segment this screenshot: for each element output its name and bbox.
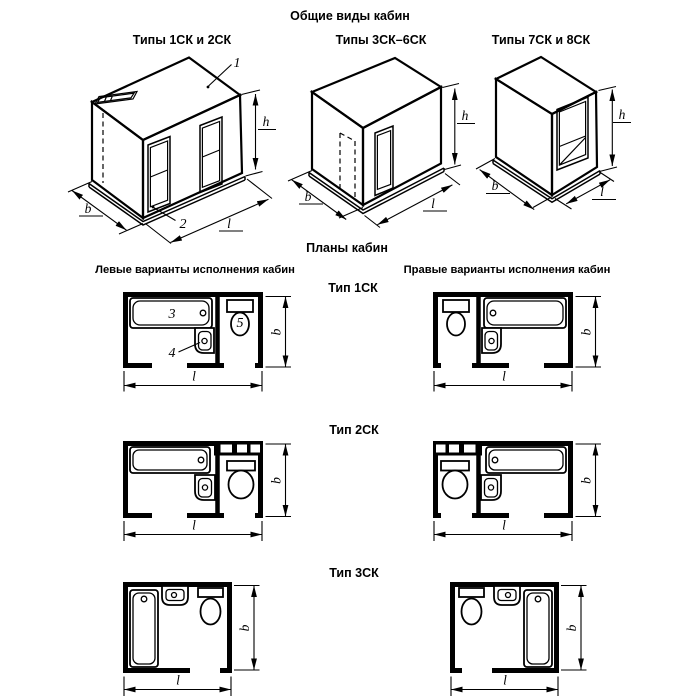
right-variants-heading: Правые варианты исполнения кабин (404, 264, 611, 276)
dimension-b: b (561, 586, 587, 671)
dim-b-label: b (564, 624, 579, 631)
plan-2sk-left-interior (123, 441, 263, 518)
door-opening (557, 97, 588, 170)
door-opening-1 (148, 137, 170, 213)
dimension-h: h (242, 90, 277, 176)
dimension-b: b (266, 444, 292, 517)
dim-b-label: b (237, 624, 252, 631)
dim-l-label: l (227, 216, 231, 231)
callout-roof-number: 1 (234, 56, 241, 71)
plan-1sk-left: 3 4 5 b l (123, 292, 291, 392)
page-title: Общие виды кабин (290, 9, 410, 23)
iso-view-types-1sk-2sk: Типы 1СК и 2СК 1 2 (68, 33, 276, 244)
callout-toilet-number: 5 (237, 316, 244, 331)
plan-2sk-left: b l (123, 441, 291, 541)
door-opening-2 (200, 117, 222, 193)
dim-l-label: l (502, 369, 506, 384)
callout-base-number: 2 (180, 217, 187, 232)
dimension-l: l (124, 518, 262, 542)
plan-2sk-right: b l (433, 441, 601, 541)
plans-title: Планы кабин (306, 241, 388, 255)
dimension-l: l (555, 172, 616, 209)
plan-row-2sk: Тип 2СК b l b l (123, 423, 601, 541)
plan-row-1sk: Тип 1СК 3 4 5 b l b (123, 281, 601, 392)
dim-b-label: b (579, 477, 594, 484)
dimension-b: b (576, 444, 602, 517)
dim-b-label: b (269, 328, 284, 335)
dimension-l: l (124, 369, 262, 392)
dimension-l: l (124, 673, 231, 697)
dim-l-label: l (502, 518, 506, 533)
dimension-h: h (443, 84, 476, 170)
drawing-page: Общие виды кабин Типы 1СК и 2СК 1 (0, 0, 700, 700)
dim-l-label: l (431, 196, 435, 211)
dim-l-label: l (503, 673, 507, 688)
iso-view-types-7sk-8sk: Типы 7СК и 8СК b l h (476, 33, 631, 210)
plan-row-3sk: Тип 3СК b l b l (123, 566, 587, 696)
callout-washbasin-number: 4 (169, 346, 176, 361)
plan-1sk-right-interior (433, 292, 573, 368)
dim-b-label: b (305, 189, 312, 204)
iso-caption-2: Типы 3СК–6СК (336, 33, 427, 47)
dimension-l: l (365, 174, 461, 228)
dim-h-label: h (619, 107, 626, 122)
dim-l-label: l (192, 369, 196, 384)
plan-3sk-right: b l (450, 582, 587, 696)
dimension-h: h (599, 87, 632, 172)
dimension-l: l (451, 673, 558, 697)
dim-h-label: h (263, 114, 270, 129)
type-3sk-label: Тип 3СК (329, 566, 379, 580)
dim-l-label: l (192, 518, 196, 533)
iso-caption-1: Типы 1СК и 2СК (133, 33, 232, 47)
dim-l-label: l (176, 673, 180, 688)
left-variants-heading: Левые варианты исполнения кабин (95, 264, 295, 276)
callout-bathtub-number: 3 (168, 307, 176, 322)
dim-b-label: b (269, 477, 284, 484)
dim-h-label: h (462, 108, 469, 123)
type-1sk-label: Тип 1СК (328, 281, 378, 295)
plan-3sk-left: b l (123, 582, 260, 696)
dimension-l: l (434, 369, 572, 392)
roof-vent-grille (95, 92, 137, 105)
dimension-b: b (234, 586, 260, 671)
dimension-b: b (476, 159, 552, 210)
iso-view-types-3sk-6sk: Типы 3СК–6СК b l h (288, 33, 475, 228)
plan-3sk-left-interior (123, 582, 232, 673)
dim-b-label: b (579, 328, 594, 335)
iso-caption-3: Типы 7СК и 8СК (492, 33, 591, 47)
plan-2sk-right-interior (433, 441, 573, 518)
dim-b-label: b (492, 178, 499, 193)
door-opening (375, 126, 393, 196)
sanitary-cabins-drawing: Общие виды кабин Типы 1СК и 2СК 1 (0, 0, 700, 700)
plan-1sk-right: b l (433, 292, 601, 392)
cabin-box (496, 57, 597, 195)
dimension-l: l (434, 518, 572, 542)
plan-3sk-right-interior (450, 582, 559, 673)
dim-b-label: b (85, 201, 92, 216)
dim-l-label: l (600, 184, 604, 199)
dimension-b: b (576, 297, 602, 368)
dimension-b: b (266, 297, 292, 368)
type-2sk-label: Тип 2СК (329, 423, 379, 437)
